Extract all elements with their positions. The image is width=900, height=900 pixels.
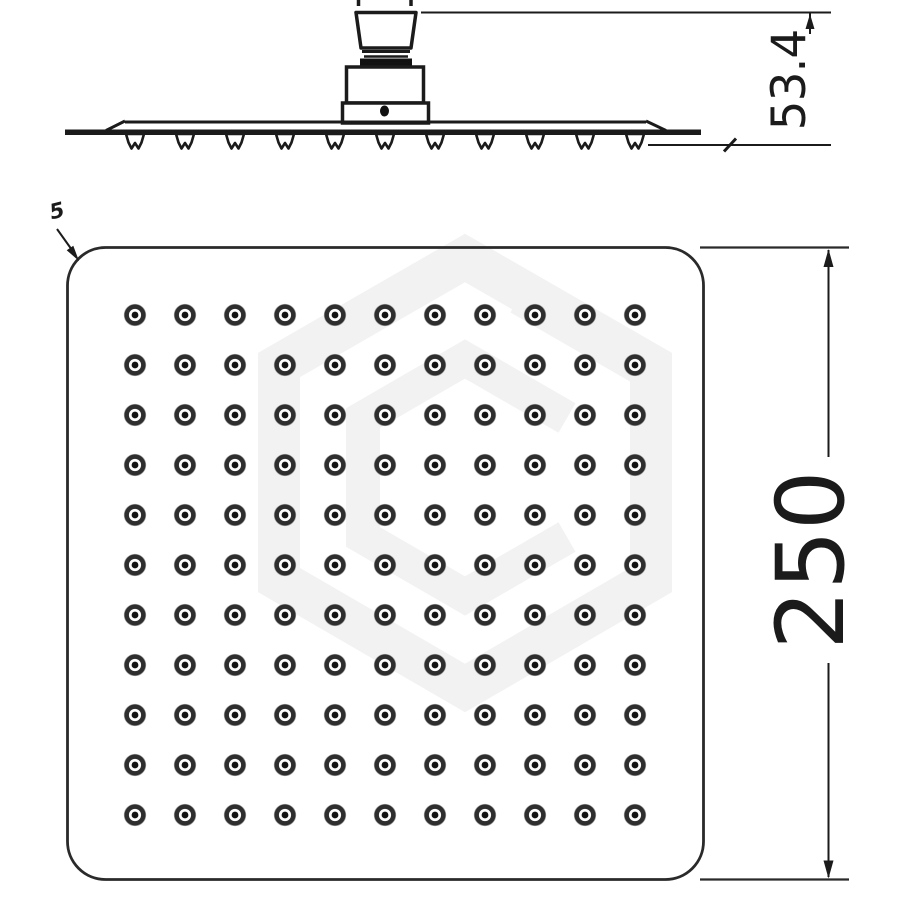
- plan-view: [57, 229, 849, 880]
- width-dim-arrow-up: [824, 249, 834, 267]
- leader-arrow: [67, 246, 79, 261]
- plate-left-bevel: [106, 121, 125, 131]
- connector-body: [347, 67, 424, 103]
- nozzle-grid: [115, 295, 665, 845]
- height-dimension-label: 53.4: [764, 0, 816, 165]
- plate-right-bevel: [646, 121, 666, 131]
- width-dim-arrow-down: [824, 861, 834, 879]
- side-nozzle-row: [115, 133, 665, 151]
- connector-upper-block: [356, 13, 416, 49]
- corner-radius-leader: [57, 229, 79, 261]
- pipe-stub-lines: [359, 0, 412, 6]
- leader-line: [57, 229, 72, 250]
- side-view: [65, 0, 831, 152]
- drawing-canvas: 53.4 250 5: [0, 0, 900, 900]
- base-screw-dot: [380, 106, 389, 117]
- width-dimension-label: 250: [762, 460, 862, 660]
